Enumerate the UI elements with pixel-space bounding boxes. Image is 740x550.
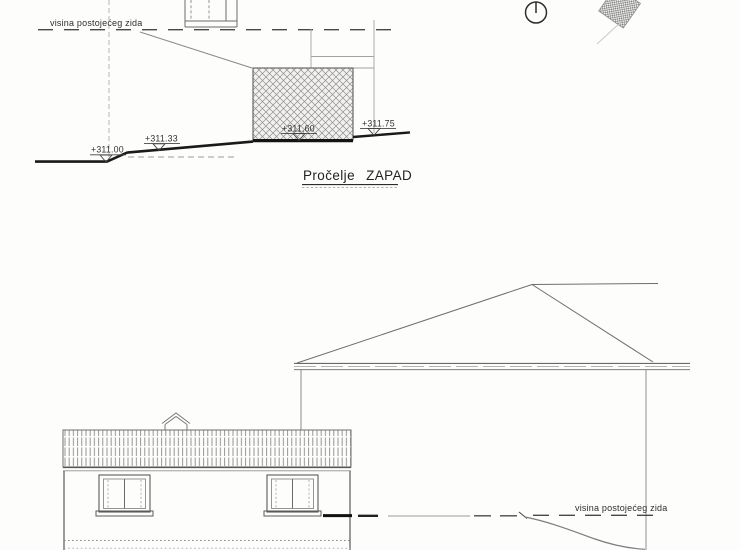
wall-height-label-top: visina postojećeg zida (50, 18, 142, 28)
house-roof-fascia-hatched (63, 430, 351, 467)
level-label-311-00: +311.00 (91, 145, 124, 155)
drawing-title-block: Pročelje ZAPAD (302, 168, 412, 188)
elevation-drawings-canvas: visina postojećeg zida +311.00 (0, 0, 740, 550)
level-label-311-60: +311,60 (282, 124, 315, 134)
house-right-window (264, 475, 321, 516)
terrain-right-of-house (323, 512, 657, 549)
eaves-lines (294, 363, 690, 369)
window-above-section (185, 0, 237, 27)
level-label-311-33: +311.33 (145, 134, 178, 144)
drawing-title: Pročelje ZAPAD (303, 168, 412, 183)
east-elevation-drawing: visina postojećeg zida (63, 284, 690, 550)
site-marker-leader-line (597, 21, 622, 44)
architectural-drawing-page: visina postojećeg zida +311.00 (0, 0, 740, 550)
diagonal-connection-line (140, 32, 252, 68)
hip-roof-outline (297, 284, 658, 364)
level-marker-311-00: +311.00 (90, 145, 126, 163)
roof-vent (162, 413, 190, 430)
house-left-window (96, 475, 153, 516)
terrain-ground-line-left (35, 142, 253, 162)
level-label-311-75: +311.75 (362, 119, 395, 129)
house-facade (63, 413, 351, 550)
wall-height-label-bottom: visina postojećeg zida (575, 503, 667, 513)
north-arrow-icon (526, 2, 547, 23)
roof-left-slope (297, 285, 532, 364)
terrain-ground-line-right (353, 132, 410, 137)
orientation-symbols (526, 0, 641, 44)
roof-ridge-line (532, 284, 658, 285)
west-elevation-drawing: visina postojećeg zida +311.00 (35, 0, 412, 188)
hatched-site-marker-icon (597, 0, 640, 44)
level-marker-311-75: +311.75 (360, 119, 396, 136)
terrain-slope-curve (525, 517, 645, 549)
roof-right-slope (532, 285, 653, 363)
